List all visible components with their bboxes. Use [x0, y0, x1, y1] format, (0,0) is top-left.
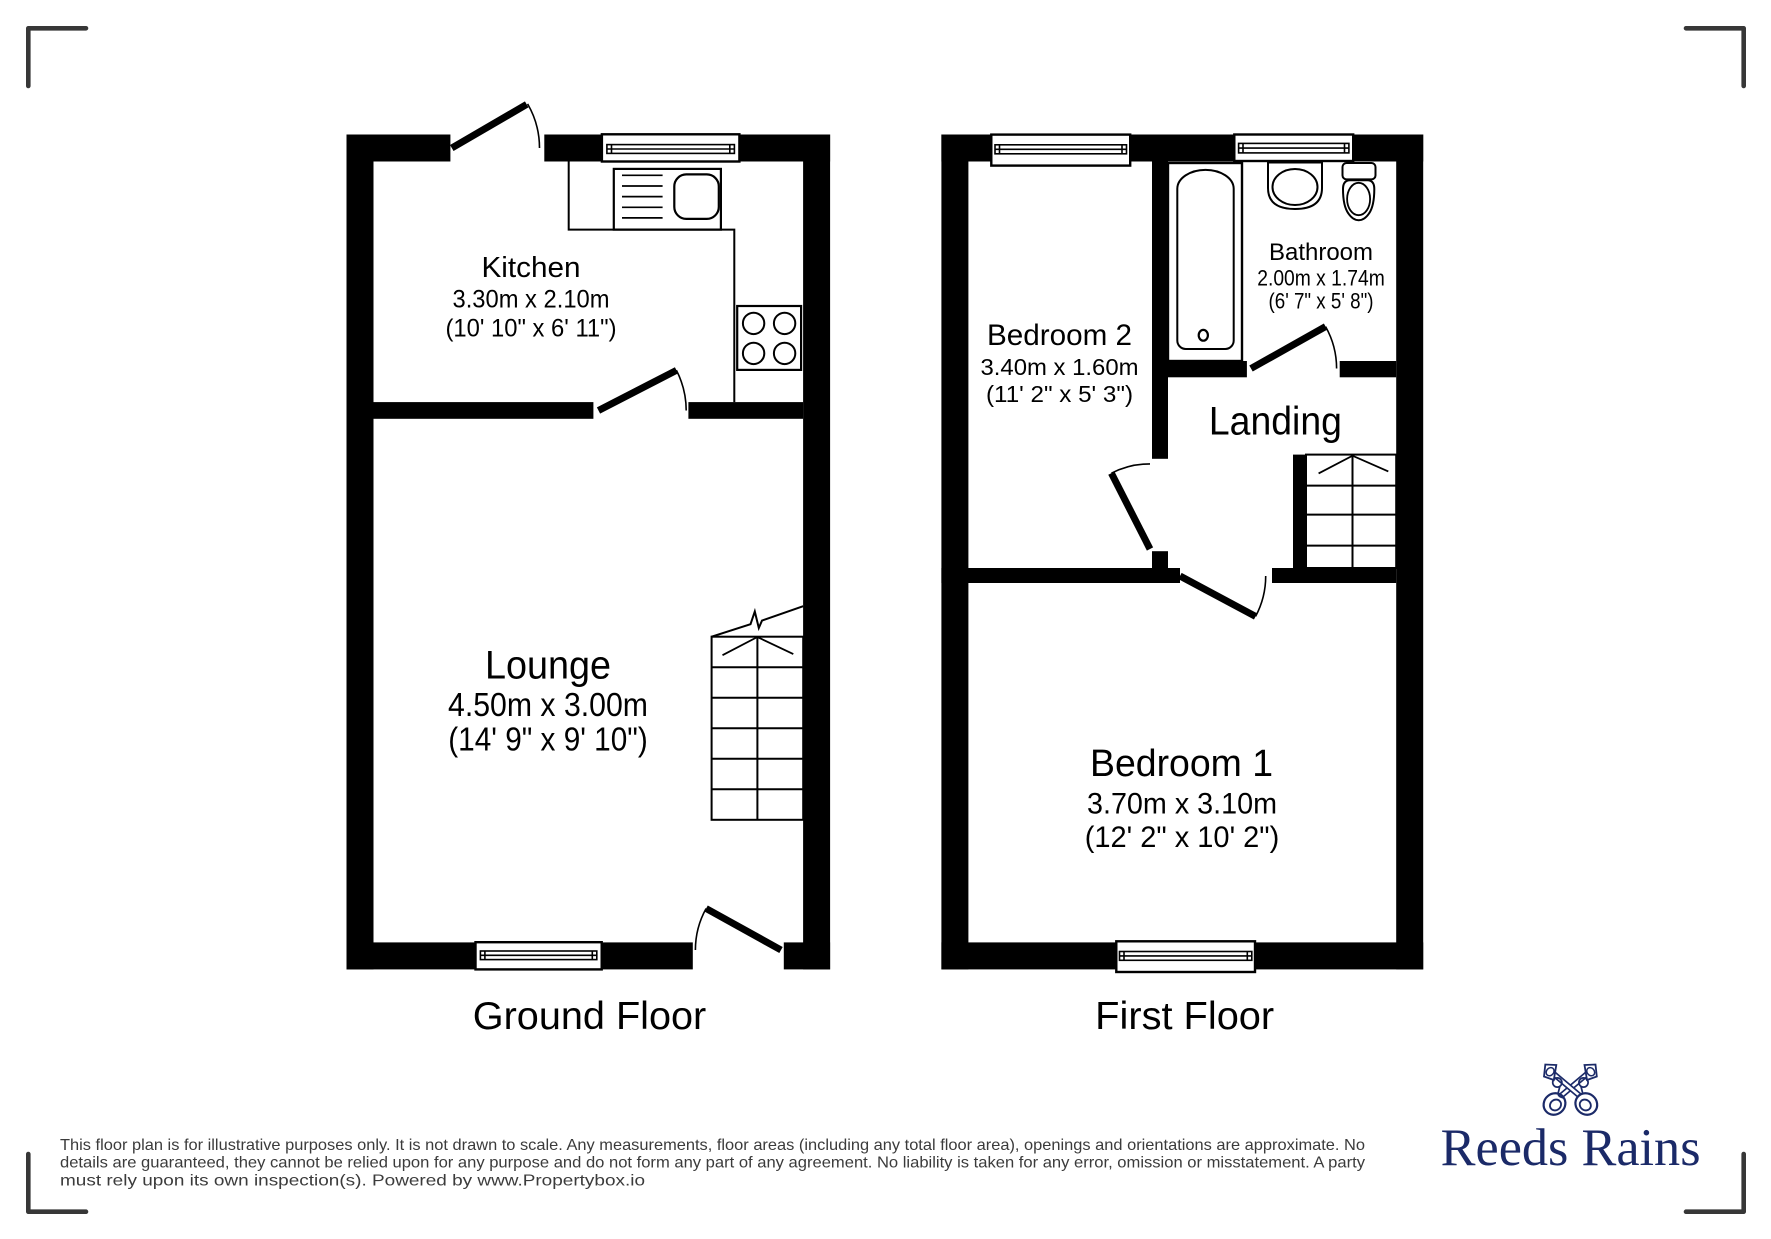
svg-text:(10' 10" x 6' 11"): (10' 10" x 6' 11") [446, 314, 617, 342]
svg-text:3.70m x 3.10m: 3.70m x 3.10m [1087, 788, 1277, 821]
svg-text:Landing: Landing [1209, 399, 1342, 443]
svg-text:details are guaranteed, they c: details are guaranteed, they cannot be r… [60, 1155, 1365, 1172]
svg-text:Kitchen: Kitchen [482, 252, 581, 284]
svg-text:Lounge: Lounge [485, 644, 611, 688]
svg-text:2.00m x 1.74m: 2.00m x 1.74m [1257, 266, 1385, 291]
svg-text:This floor plan is for illustr: This floor plan is for illustrative purp… [60, 1137, 1365, 1154]
svg-text:must rely upon its own inspect: must rely upon its own inspection(s). Po… [60, 1173, 645, 1190]
svg-text:Ground Floor: Ground Floor [473, 995, 707, 1038]
svg-text:Bedroom 2: Bedroom 2 [987, 319, 1132, 352]
svg-text:Bedroom 1: Bedroom 1 [1090, 742, 1273, 785]
svg-text:(12' 2" x 10' 2"): (12' 2" x 10' 2") [1085, 821, 1280, 854]
svg-text:(6' 7" x 5' 8"): (6' 7" x 5' 8") [1269, 289, 1374, 314]
svg-text:3.30m x 2.10m: 3.30m x 2.10m [453, 285, 610, 313]
svg-text:Bathroom: Bathroom [1269, 240, 1373, 266]
svg-text:First Floor: First Floor [1095, 995, 1274, 1038]
svg-text:Reeds Rains: Reeds Rains [1441, 1119, 1701, 1177]
svg-text:(14' 9" x 9' 10"): (14' 9" x 9' 10") [448, 721, 648, 758]
svg-text:4.50m x 3.00m: 4.50m x 3.00m [448, 686, 648, 723]
svg-text:3.40m x 1.60m: 3.40m x 1.60m [981, 354, 1139, 380]
svg-text:(11' 2" x 5' 3"): (11' 2" x 5' 3") [986, 381, 1133, 407]
